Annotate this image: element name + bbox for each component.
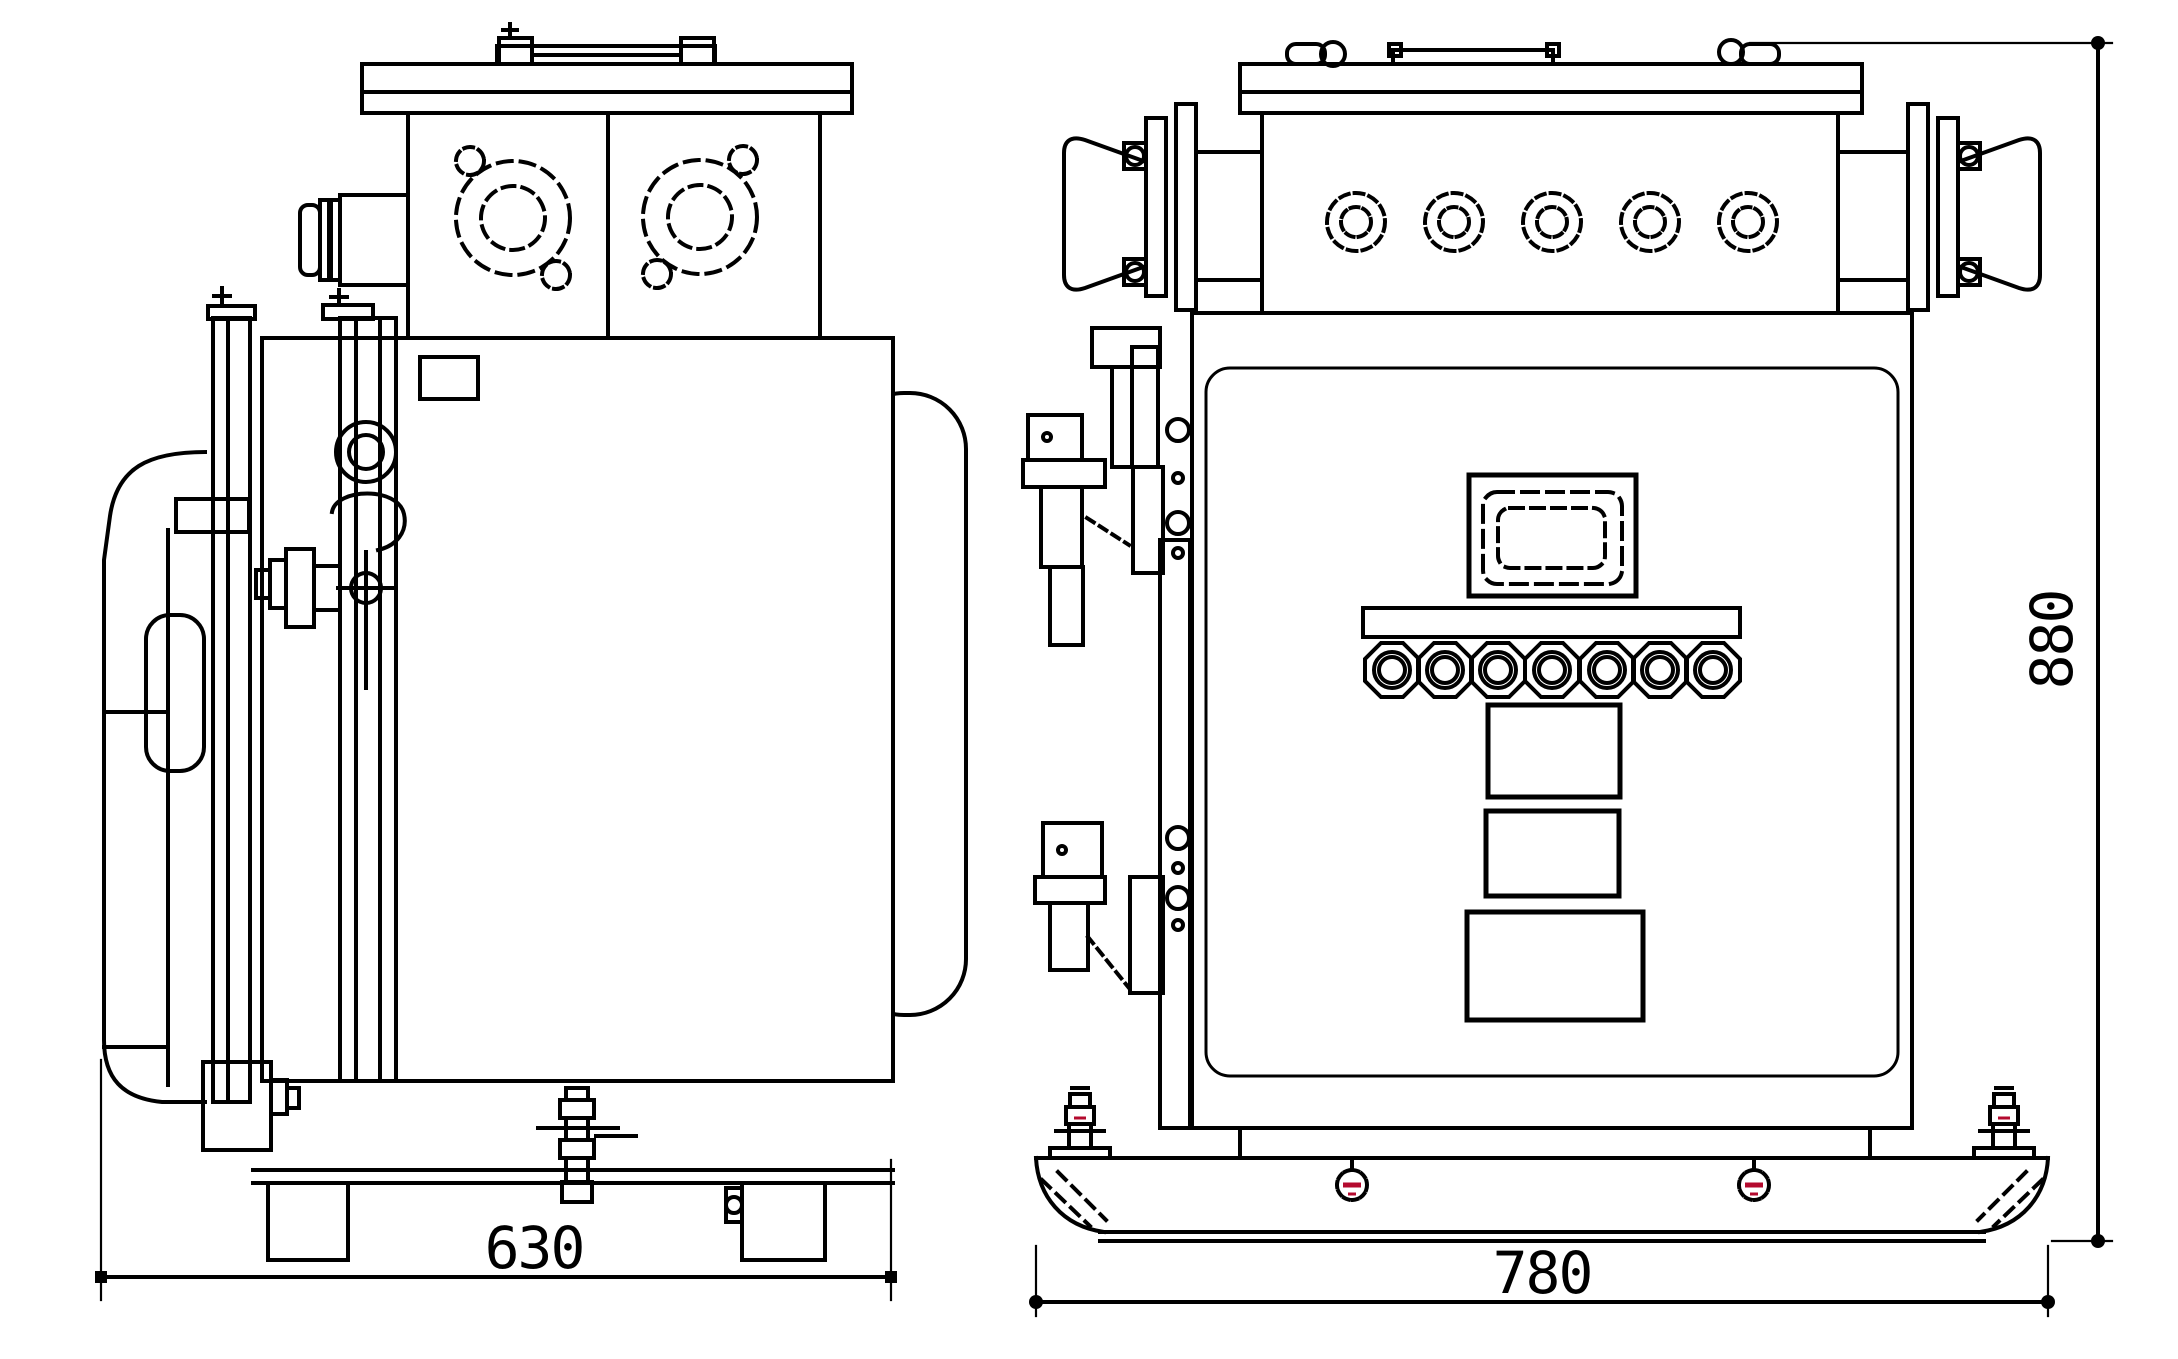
dim-value-780: 780 <box>1493 1239 1592 1307</box>
flanged-port-right <box>643 146 757 288</box>
horn-connector-right <box>1838 104 2040 310</box>
dim-value-880: 880 <box>2018 591 2086 690</box>
cable-gland <box>1719 193 1777 251</box>
base-screw-red-left <box>1337 1158 1367 1200</box>
front-terminal-box <box>1262 113 1838 313</box>
drawing-canvas: 630 <box>0 0 2178 1359</box>
front-hinge-assembly <box>1023 328 1190 1128</box>
foot-bolt-left <box>1050 1088 1110 1158</box>
cable-gland <box>1425 193 1483 251</box>
cable-gland-row <box>1327 193 1777 251</box>
side-view: 630 <box>95 24 966 1300</box>
cable-gland <box>1523 193 1581 251</box>
horn-connector-left <box>1064 104 1262 310</box>
engineering-drawing: 630 <box>0 0 2178 1359</box>
side-foot-right <box>742 1183 825 1260</box>
front-lid <box>1240 64 1862 113</box>
front-pedestal <box>1240 1128 1870 1158</box>
hinge-bolt-group-upper <box>1167 419 1189 558</box>
dimension-front-width: 780 <box>1029 1239 2055 1316</box>
foot-bolt-right <box>1974 1088 2034 1158</box>
front-view: 780 880 <box>1023 36 2112 1316</box>
dim-value-630: 630 <box>485 1214 584 1282</box>
front-body <box>1192 313 1912 1128</box>
cable-gland <box>1621 193 1679 251</box>
front-base-sled <box>1036 1158 2048 1241</box>
hinge-bolt-group-lower <box>1167 827 1189 930</box>
side-door-edge-bar <box>208 288 255 1102</box>
side-cable-entry <box>300 195 408 285</box>
side-lid-clamp-plate <box>497 24 715 64</box>
flanged-port-left <box>456 147 570 289</box>
side-foot-left <box>268 1183 348 1260</box>
cable-gland <box>1327 193 1385 251</box>
side-lid <box>362 64 852 113</box>
dimension-side-width: 630 <box>95 1060 897 1300</box>
door-handle <box>146 615 204 771</box>
base-screw-red-right <box>1739 1158 1769 1200</box>
